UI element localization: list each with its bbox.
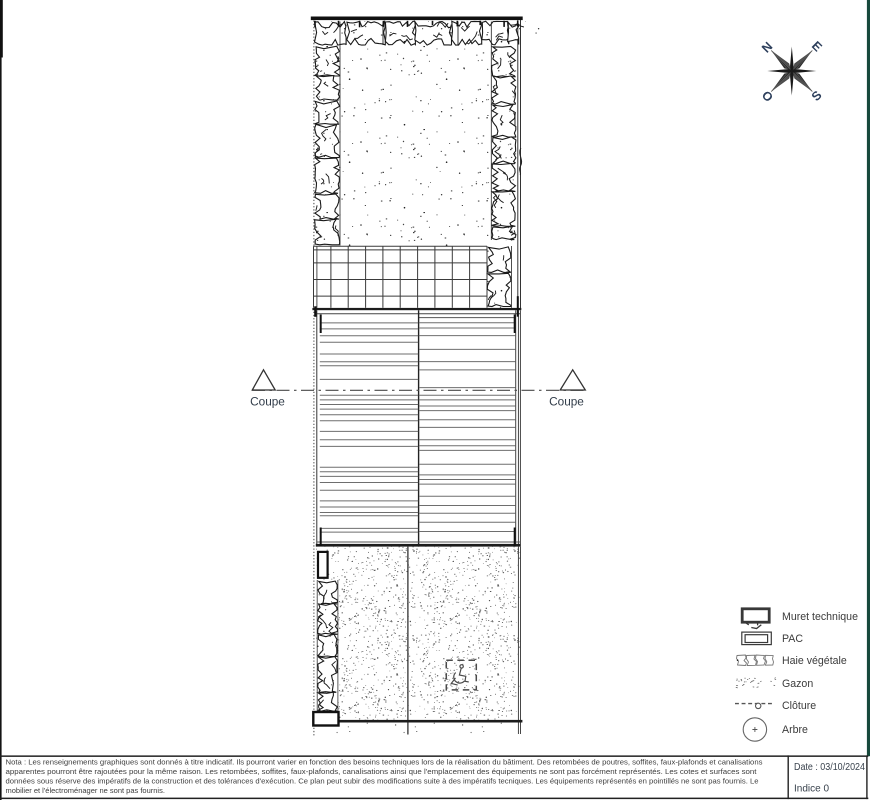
svg-text:Coupe: Coupe (250, 395, 285, 409)
svg-text:mobilier et l'électroménager n: mobilier et l'électroménager ne sont pas… (6, 786, 165, 795)
svg-text:Haie végétale: Haie végétale (782, 655, 847, 667)
svg-text:Date : 03/10/2024: Date : 03/10/2024 (794, 762, 865, 773)
svg-text:Clôture: Clôture (782, 700, 816, 712)
svg-text:PAC: PAC (782, 633, 803, 645)
svg-text:données sous réserve des impér: données sous réserve des impératifs de l… (6, 777, 759, 786)
svg-text:Coupe: Coupe (549, 395, 584, 409)
svg-text:Gazon: Gazon (782, 678, 813, 690)
svg-text:Nota : Les renseignements grap: Nota : Les renseignements graphiques son… (6, 758, 763, 767)
svg-text:Arbre: Arbre (782, 724, 808, 736)
svg-text:apparentes pourront être rajou: apparentes pourront être rajoutées pour … (6, 767, 758, 776)
svg-text:Indice 0: Indice 0 (794, 783, 829, 794)
svg-text:Muret technique: Muret technique (782, 611, 858, 623)
